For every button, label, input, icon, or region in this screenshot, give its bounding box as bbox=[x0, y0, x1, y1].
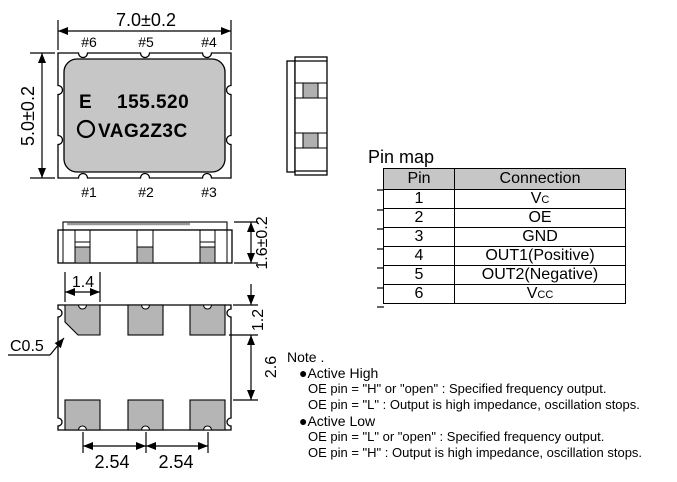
pin-label-5: #5 bbox=[138, 34, 154, 50]
note-line: OE pin = "L" or "open" : Specified frequ… bbox=[287, 429, 675, 445]
pin-map-header-pin: Pin bbox=[384, 169, 455, 190]
dim-package-width-label: 7.0±0.2 bbox=[116, 10, 176, 30]
front-pad-1 bbox=[75, 247, 90, 263]
pin-map-header-row: Pin Connection bbox=[384, 169, 626, 190]
dim-pitch-right-label: 2.54 bbox=[158, 452, 193, 472]
marking-vendor-code: E bbox=[79, 92, 92, 113]
pin-label-3: #3 bbox=[201, 184, 217, 200]
pin-number: 1 bbox=[384, 190, 455, 209]
note-block: Note . ●Active High OE pin = "H" or "ope… bbox=[287, 349, 675, 461]
pin-number: 6 bbox=[384, 285, 455, 304]
dim-pitch-left-label: 2.54 bbox=[94, 452, 129, 472]
pin-number: 2 bbox=[384, 209, 455, 228]
side-pad-lower bbox=[303, 133, 318, 148]
note-line: OE pin = "H" : Output is high impedance,… bbox=[287, 445, 675, 461]
note-line: OE pin = "L" : Output is high impedance,… bbox=[287, 397, 675, 413]
top-view bbox=[58, 53, 231, 178]
pin-connection: OUT1(Positive) bbox=[455, 247, 626, 266]
pin-label-2: #2 bbox=[138, 184, 154, 200]
dim-row-gap-label: 2.6 bbox=[263, 356, 280, 378]
pin-number: 4 bbox=[384, 247, 455, 266]
note-line: OE pin = "H" or "open" : Specified frequ… bbox=[287, 381, 675, 397]
note-active-low-heading: ●Active Low bbox=[287, 413, 675, 429]
pin-connection: Vc bbox=[455, 190, 626, 209]
dim-chamfer-label: C0.5 bbox=[10, 338, 44, 355]
side-lid bbox=[287, 61, 295, 172]
side-pad-upper bbox=[303, 83, 318, 98]
note-active-high-heading: ●Active High bbox=[287, 365, 675, 381]
land-pattern-view bbox=[58, 305, 231, 430]
table-row: 3 GND bbox=[384, 228, 626, 247]
side-body bbox=[295, 57, 327, 175]
pin-label-4: #4 bbox=[201, 34, 217, 50]
dim-row-gap bbox=[233, 335, 258, 400]
pin-map-table: Pin Connection 1 Vc 2 OE 3 GND 4 OUT1(Po… bbox=[383, 168, 626, 304]
note-title: Note . bbox=[287, 349, 675, 365]
pin-number: 3 bbox=[384, 228, 455, 247]
package-body bbox=[64, 59, 225, 172]
pin-connection: GND bbox=[455, 228, 626, 247]
pin-connection: OE bbox=[455, 209, 626, 228]
front-view bbox=[58, 222, 232, 263]
datasheet-drawing-page: E 155.520 VAG2Z3C #6 #5 #4 #1 #2 #3 7.0±… bbox=[0, 0, 677, 482]
marking-part-code: VAG2Z3C bbox=[98, 121, 188, 142]
front-pad-2 bbox=[137, 247, 153, 263]
pin-label-1: #1 bbox=[81, 184, 97, 200]
dim-pad-height-label: 1.2 bbox=[250, 309, 267, 331]
table-row: 6 Vcc bbox=[384, 285, 626, 304]
pin-map-header-connection: Connection bbox=[455, 169, 626, 190]
dim-package-thickness-label: 1.6±0.2 bbox=[254, 216, 271, 269]
pin-number: 5 bbox=[384, 266, 455, 285]
pin-label-6: #6 bbox=[81, 34, 97, 50]
pin-connection: Vcc bbox=[455, 285, 626, 304]
table-row: 4 OUT1(Positive) bbox=[384, 247, 626, 266]
side-view bbox=[287, 57, 327, 175]
dim-pitch bbox=[83, 432, 208, 453]
pin-connection: OUT2(Negative) bbox=[455, 266, 626, 285]
table-row: 5 OUT2(Negative) bbox=[384, 266, 626, 285]
marking-frequency: 155.520 bbox=[117, 92, 189, 113]
table-row: 2 OE bbox=[384, 209, 626, 228]
pin-map-title: Pin map bbox=[368, 147, 434, 168]
dim-package-height-label: 5.0±0.2 bbox=[18, 86, 38, 146]
table-row: 1 Vc bbox=[384, 190, 626, 209]
dim-pad-width-label: 1.4 bbox=[72, 274, 94, 291]
front-pad-3 bbox=[200, 247, 215, 263]
